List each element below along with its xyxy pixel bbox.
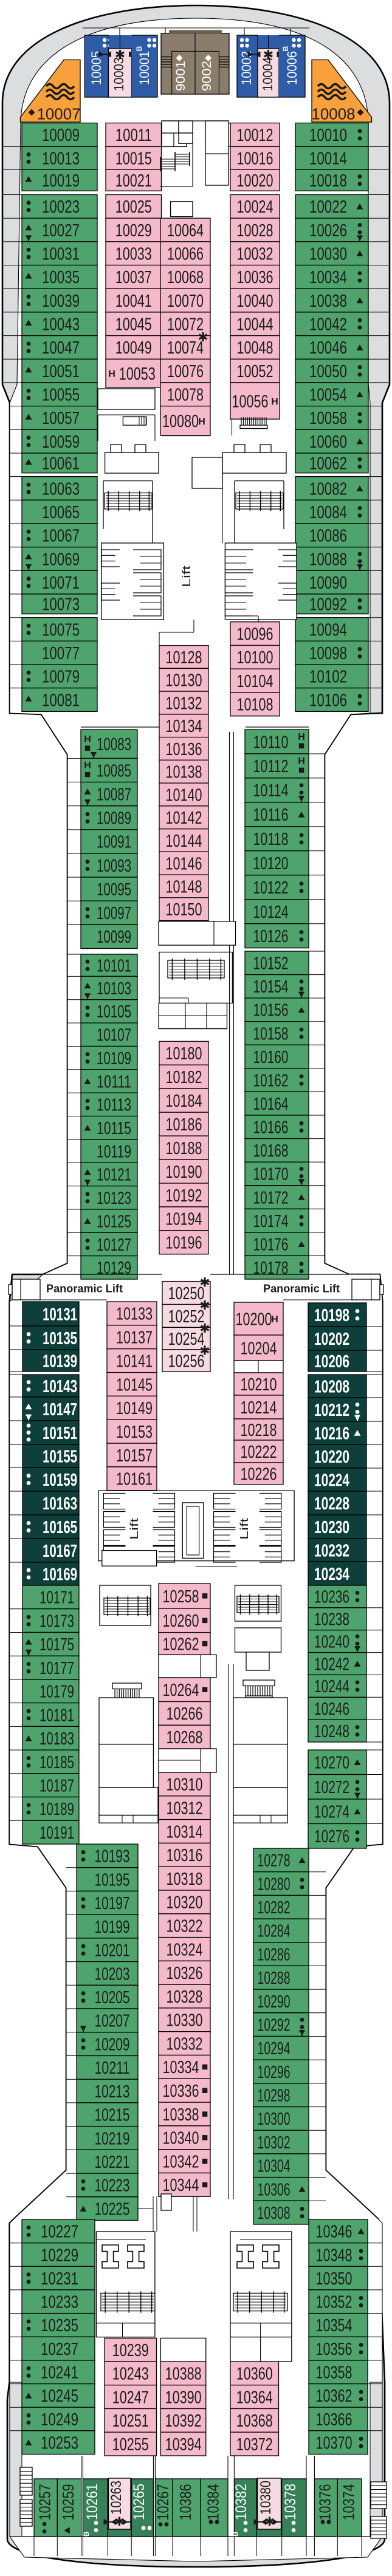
svg-text:10134: 10134 <box>166 717 202 736</box>
svg-text:10190: 10190 <box>166 1163 202 1182</box>
svg-text:10384: 10384 <box>204 2484 222 2521</box>
svg-text:10176: 10176 <box>253 1235 289 1254</box>
svg-text:H: H <box>84 734 91 745</box>
svg-text:10038: 10038 <box>309 292 347 311</box>
svg-text:10215: 10215 <box>95 2106 130 2125</box>
svg-text:10001: 10001 <box>137 51 152 85</box>
svg-text:10358: 10358 <box>316 2363 352 2383</box>
svg-text:9001: 9001 <box>174 61 188 91</box>
svg-text:10382: 10382 <box>233 2484 250 2520</box>
svg-text:10386: 10386 <box>176 2484 194 2521</box>
svg-text:10308: 10308 <box>258 2204 291 2223</box>
svg-text:9002: 9002 <box>200 61 214 91</box>
svg-text:10322: 10322 <box>167 1917 203 1936</box>
svg-text:10066: 10066 <box>167 245 204 264</box>
svg-text:10171: 10171 <box>40 1588 74 1608</box>
svg-text:10160: 10160 <box>253 1048 289 1067</box>
svg-text:10178: 10178 <box>253 1259 289 1278</box>
svg-text:10235: 10235 <box>41 2316 78 2335</box>
svg-text:10099: 10099 <box>97 928 131 947</box>
svg-text:10144: 10144 <box>166 832 202 851</box>
svg-text:10274: 10274 <box>314 1803 349 1822</box>
svg-text:10132: 10132 <box>166 694 202 713</box>
svg-text:10065: 10065 <box>42 503 80 522</box>
svg-text:10124: 10124 <box>253 903 289 922</box>
svg-text:10018: 10018 <box>309 171 347 191</box>
svg-text:10177: 10177 <box>40 1659 74 1678</box>
svg-text:10007: 10007 <box>37 105 81 123</box>
svg-text:10100: 10100 <box>237 648 273 668</box>
svg-text:10268: 10268 <box>167 1728 203 1748</box>
svg-text:10040: 10040 <box>237 292 273 311</box>
svg-text:10370: 10370 <box>316 2434 352 2453</box>
svg-text:10155: 10155 <box>43 1447 77 1466</box>
svg-text:10167: 10167 <box>43 1542 77 1561</box>
svg-text:B: B <box>281 46 290 51</box>
svg-text:10023: 10023 <box>42 197 80 217</box>
svg-text:10179: 10179 <box>40 1683 74 1702</box>
svg-text:10256: 10256 <box>168 1352 205 1372</box>
svg-text:10228: 10228 <box>314 1494 349 1514</box>
svg-text:10263: 10263 <box>108 2481 125 2515</box>
svg-text:10138: 10138 <box>166 763 202 782</box>
svg-text:10244: 10244 <box>314 1677 349 1696</box>
svg-text:10076: 10076 <box>167 362 204 381</box>
svg-text:10136: 10136 <box>166 740 202 759</box>
svg-text:10013: 10013 <box>42 149 80 169</box>
svg-text:10368: 10368 <box>236 2411 273 2431</box>
svg-text:10198: 10198 <box>314 1306 349 1325</box>
svg-text:10226: 10226 <box>241 1464 277 1484</box>
svg-text:10070: 10070 <box>167 292 204 311</box>
svg-text:10252: 10252 <box>168 1307 205 1327</box>
svg-text:10225: 10225 <box>95 2199 130 2219</box>
svg-text:10280: 10280 <box>258 1874 291 1894</box>
svg-text:10210: 10210 <box>241 1375 277 1395</box>
svg-text:10164: 10164 <box>253 1095 289 1114</box>
svg-text:10005: 10005 <box>89 51 104 85</box>
svg-text:10231: 10231 <box>41 2269 78 2289</box>
svg-text:10362: 10362 <box>316 2386 352 2406</box>
svg-text:10149: 10149 <box>116 1399 153 1418</box>
svg-text:10118: 10118 <box>253 830 289 849</box>
svg-text:10300: 10300 <box>258 2110 291 2129</box>
svg-text:10039: 10039 <box>42 292 80 311</box>
svg-text:10102: 10102 <box>309 668 347 687</box>
svg-text:10085: 10085 <box>97 761 131 781</box>
svg-text:10207: 10207 <box>95 2012 130 2031</box>
svg-text:10106: 10106 <box>309 691 347 710</box>
svg-text:10302: 10302 <box>258 2133 291 2153</box>
svg-text:10170: 10170 <box>253 1165 289 1184</box>
svg-text:10026: 10026 <box>309 221 347 241</box>
svg-text:10298: 10298 <box>258 2086 291 2106</box>
svg-text:Lift: Lift <box>128 1518 140 1540</box>
svg-text:10012: 10012 <box>237 126 273 145</box>
svg-text:10187: 10187 <box>40 1777 74 1796</box>
svg-text:10068: 10068 <box>167 268 204 287</box>
svg-text:10192: 10192 <box>166 1186 202 1206</box>
svg-text:10035: 10035 <box>42 268 80 287</box>
svg-text:10006: 10006 <box>284 51 300 85</box>
svg-text:10338: 10338 <box>163 2105 199 2125</box>
svg-text:10196: 10196 <box>166 1234 202 1253</box>
svg-text:10016: 10016 <box>237 149 273 169</box>
svg-text:10242: 10242 <box>314 1655 349 1674</box>
svg-text:10175: 10175 <box>40 1635 74 1655</box>
svg-text:10336: 10336 <box>163 2082 199 2101</box>
svg-text:10072: 10072 <box>167 315 204 335</box>
svg-text:10049: 10049 <box>115 338 152 358</box>
svg-text:10057: 10057 <box>42 409 80 428</box>
svg-text:Panoramic Lift: Panoramic Lift <box>46 1283 123 1295</box>
svg-text:10326: 10326 <box>167 1964 203 1983</box>
svg-text:10236: 10236 <box>314 1588 349 1607</box>
svg-text:10113: 10113 <box>97 1096 131 1115</box>
svg-text:10104: 10104 <box>237 672 273 691</box>
svg-text:10314: 10314 <box>167 1822 203 1842</box>
svg-text:10247: 10247 <box>112 2388 149 2407</box>
svg-text:10206: 10206 <box>314 1352 349 1372</box>
svg-text:10372: 10372 <box>236 2435 273 2455</box>
svg-text:10211: 10211 <box>95 2058 130 2078</box>
svg-text:10137: 10137 <box>116 1328 153 1348</box>
svg-text:10061: 10061 <box>42 454 80 474</box>
svg-text:10185: 10185 <box>40 1753 74 1772</box>
svg-text:10021: 10021 <box>115 171 152 191</box>
svg-text:10011: 10011 <box>115 126 152 145</box>
svg-text:10157: 10157 <box>116 1446 153 1466</box>
svg-text:10234: 10234 <box>314 1565 349 1584</box>
svg-text:10394: 10394 <box>165 2435 202 2455</box>
svg-text:10052: 10052 <box>237 362 273 381</box>
svg-text:10374: 10374 <box>339 2484 357 2521</box>
svg-text:10232: 10232 <box>314 1541 349 1560</box>
svg-text:10356: 10356 <box>316 2340 352 2359</box>
svg-text:10141: 10141 <box>116 1351 153 1371</box>
svg-text:10067: 10067 <box>42 527 80 546</box>
svg-text:10131: 10131 <box>43 1305 77 1324</box>
svg-text:10022: 10022 <box>309 197 347 217</box>
svg-text:10266: 10266 <box>167 1704 203 1724</box>
svg-text:10091: 10091 <box>97 833 131 852</box>
svg-text:10240: 10240 <box>314 1632 349 1652</box>
svg-text:10229: 10229 <box>41 2246 78 2265</box>
svg-text:10162: 10162 <box>253 1071 289 1090</box>
svg-text:10031: 10031 <box>42 245 80 264</box>
svg-text:10276: 10276 <box>314 1827 349 1847</box>
svg-text:10062: 10062 <box>309 454 347 474</box>
svg-text:10238: 10238 <box>314 1610 349 1630</box>
svg-text:10380: 10380 <box>258 2481 274 2515</box>
svg-text:10286: 10286 <box>258 1945 291 1964</box>
svg-text:10025: 10025 <box>115 197 152 217</box>
svg-text:10203: 10203 <box>95 1964 130 1984</box>
svg-text:10239: 10239 <box>112 2341 149 2360</box>
svg-text:10108: 10108 <box>237 695 273 715</box>
svg-text:10332: 10332 <box>167 2034 203 2054</box>
svg-text:10053: 10053 <box>119 364 156 384</box>
svg-text:10156: 10156 <box>253 1001 289 1020</box>
svg-text:10334: 10334 <box>163 2058 199 2077</box>
svg-text:10173: 10173 <box>40 1611 74 1631</box>
svg-text:10354: 10354 <box>316 2316 352 2335</box>
svg-text:10036: 10036 <box>237 268 273 287</box>
svg-text:10205: 10205 <box>95 1988 130 2007</box>
svg-text:10204: 10204 <box>241 1339 277 1358</box>
svg-text:10260: 10260 <box>163 1611 199 1631</box>
svg-text:10243: 10243 <box>112 2365 149 2384</box>
svg-text:10116: 10116 <box>253 805 289 825</box>
svg-text:10284: 10284 <box>258 1922 291 1941</box>
svg-text:10029: 10029 <box>115 221 152 241</box>
svg-text:10306: 10306 <box>258 2180 291 2199</box>
svg-text:10200: 10200 <box>236 1310 272 1329</box>
svg-text:10392: 10392 <box>165 2411 202 2431</box>
svg-text:10191: 10191 <box>40 1823 74 1843</box>
svg-text:10020: 10020 <box>237 171 273 191</box>
svg-text:10090: 10090 <box>309 573 347 593</box>
svg-text:10064: 10064 <box>167 221 204 241</box>
svg-text:10259: 10259 <box>59 2484 77 2521</box>
svg-text:10054: 10054 <box>309 386 347 405</box>
svg-text:10003: 10003 <box>111 57 126 91</box>
svg-text:10201: 10201 <box>95 1941 130 1961</box>
svg-text:10135: 10135 <box>43 1329 77 1348</box>
svg-text:10230: 10230 <box>314 1518 349 1537</box>
svg-text:10318: 10318 <box>167 1870 203 1889</box>
svg-text:10125: 10125 <box>97 1212 131 1231</box>
svg-text:10030: 10030 <box>309 245 347 264</box>
svg-text:10032: 10032 <box>237 245 273 264</box>
svg-text:10083: 10083 <box>97 735 131 754</box>
svg-text:10272: 10272 <box>314 1778 349 1797</box>
svg-text:10197: 10197 <box>95 1894 130 1913</box>
svg-text:B: B <box>231 2531 239 2537</box>
svg-text:10093: 10093 <box>97 856 131 876</box>
svg-text:10213: 10213 <box>95 2082 130 2102</box>
svg-text:10346: 10346 <box>316 2222 352 2242</box>
svg-text:10186: 10186 <box>166 1115 202 1135</box>
svg-text:10158: 10158 <box>253 1024 289 1044</box>
svg-text:10094: 10094 <box>309 620 347 640</box>
svg-text:10128: 10128 <box>166 648 202 668</box>
svg-text:10027: 10027 <box>42 221 80 241</box>
svg-text:10097: 10097 <box>97 904 131 923</box>
svg-text:10267: 10267 <box>154 2484 172 2521</box>
svg-text:10080: 10080 <box>162 412 199 431</box>
svg-text:10069: 10069 <box>42 550 80 569</box>
svg-text:10209: 10209 <box>95 2035 130 2054</box>
svg-text:10202: 10202 <box>314 1330 349 1349</box>
svg-text:10119: 10119 <box>97 1142 131 1161</box>
svg-text:10146: 10146 <box>166 855 202 874</box>
svg-text:10264: 10264 <box>163 1681 199 1700</box>
svg-text:10360: 10360 <box>236 2365 273 2384</box>
svg-text:10233: 10233 <box>41 2293 78 2312</box>
svg-text:10047: 10047 <box>42 338 80 358</box>
svg-text:10390: 10390 <box>165 2388 202 2407</box>
svg-text:10154: 10154 <box>253 977 289 997</box>
svg-text:10129: 10129 <box>97 1259 131 1278</box>
svg-text:10251: 10251 <box>112 2411 149 2431</box>
svg-text:10253: 10253 <box>41 2434 78 2453</box>
svg-text:10015: 10015 <box>115 149 152 169</box>
svg-text:10071: 10071 <box>42 573 80 593</box>
svg-text:10042: 10042 <box>309 315 347 335</box>
svg-text:10320: 10320 <box>167 1893 203 1913</box>
svg-text:10089: 10089 <box>97 809 131 828</box>
svg-text:10241: 10241 <box>41 2363 78 2383</box>
svg-text:10366: 10366 <box>316 2410 352 2430</box>
svg-text:10290: 10290 <box>258 1992 291 2012</box>
svg-text:10034: 10034 <box>309 268 347 287</box>
svg-text:H: H <box>84 760 91 771</box>
svg-text:10219: 10219 <box>95 2129 130 2148</box>
svg-text:10122: 10122 <box>253 878 289 898</box>
svg-text:10123: 10123 <box>97 1189 131 1208</box>
svg-text:10250: 10250 <box>168 1284 205 1303</box>
svg-text:10172: 10172 <box>253 1188 289 1208</box>
svg-text:10051: 10051 <box>42 362 80 381</box>
svg-text:10294: 10294 <box>258 2039 291 2058</box>
svg-text:10037: 10037 <box>115 268 152 287</box>
svg-text:H: H <box>198 417 205 427</box>
svg-text:10101: 10101 <box>97 957 131 976</box>
svg-text:10310: 10310 <box>167 1775 203 1795</box>
svg-text:10115: 10115 <box>97 1119 131 1138</box>
svg-text:10316: 10316 <box>167 1846 203 1865</box>
svg-text:10002: 10002 <box>239 51 254 85</box>
svg-text:10028: 10028 <box>237 221 273 241</box>
svg-text:H: H <box>298 756 305 767</box>
svg-text:10086: 10086 <box>309 527 347 546</box>
svg-text:10044: 10044 <box>237 315 273 335</box>
svg-text:10378: 10378 <box>282 2484 299 2520</box>
svg-text:10103: 10103 <box>97 979 131 999</box>
svg-text:10181: 10181 <box>40 1706 74 1725</box>
svg-text:10296: 10296 <box>258 2063 291 2082</box>
svg-text:10121: 10121 <box>97 1166 131 1185</box>
svg-text:10059: 10059 <box>42 432 80 452</box>
svg-text:10145: 10145 <box>116 1375 153 1395</box>
svg-text:10292: 10292 <box>258 2016 291 2035</box>
svg-text:10220: 10220 <box>314 1447 349 1467</box>
svg-text:H: H <box>298 732 305 742</box>
svg-text:10114: 10114 <box>253 781 289 801</box>
svg-text:10150: 10150 <box>166 900 202 920</box>
svg-text:10168: 10168 <box>253 1141 289 1161</box>
svg-text:10304: 10304 <box>258 2157 291 2176</box>
svg-text:10248: 10248 <box>314 1722 349 1741</box>
svg-text:H: H <box>271 397 278 407</box>
svg-text:10058: 10058 <box>309 409 347 428</box>
svg-text:10352: 10352 <box>316 2293 352 2312</box>
svg-text:Lift: Lift <box>181 565 193 587</box>
svg-text:10098: 10098 <box>309 644 347 663</box>
svg-text:10214: 10214 <box>241 1398 277 1418</box>
svg-text:10388: 10388 <box>165 2365 202 2384</box>
svg-text:10376: 10376 <box>316 2484 334 2521</box>
svg-text:10078: 10078 <box>167 386 204 405</box>
svg-text:10096: 10096 <box>237 625 273 644</box>
svg-text:10088: 10088 <box>309 550 347 569</box>
svg-text:10265: 10265 <box>131 2484 148 2520</box>
svg-text:10045: 10045 <box>115 315 152 335</box>
svg-text:10147: 10147 <box>43 1400 77 1420</box>
svg-text:10008: 10008 <box>312 105 356 123</box>
svg-text:10050: 10050 <box>309 362 347 381</box>
svg-text:Lift: Lift <box>238 1518 250 1540</box>
svg-text:10041: 10041 <box>115 292 152 311</box>
svg-text:10143: 10143 <box>43 1377 77 1396</box>
svg-text:10270: 10270 <box>314 1754 349 1773</box>
svg-text:10182: 10182 <box>166 1068 202 1087</box>
svg-text:10344: 10344 <box>163 2176 199 2195</box>
svg-text:10073: 10073 <box>42 595 80 615</box>
svg-text:10364: 10364 <box>236 2388 273 2407</box>
svg-text:10120: 10120 <box>253 854 289 873</box>
svg-text:10095: 10095 <box>97 880 131 900</box>
svg-text:10193: 10193 <box>95 1847 130 1867</box>
svg-text:B: B <box>135 46 143 51</box>
svg-text:10010: 10010 <box>309 126 347 145</box>
svg-text:10199: 10199 <box>95 1918 130 1937</box>
svg-text:10258: 10258 <box>163 1587 199 1607</box>
svg-text:10105: 10105 <box>97 1002 131 1022</box>
svg-text:10009: 10009 <box>42 126 80 145</box>
svg-text:10033: 10033 <box>115 245 152 264</box>
svg-text:10227: 10227 <box>41 2222 78 2242</box>
svg-text:10084: 10084 <box>309 503 347 522</box>
svg-text:10004: 10004 <box>260 57 275 91</box>
svg-text:10166: 10166 <box>253 1118 289 1138</box>
svg-text:10063: 10063 <box>42 479 80 499</box>
svg-text:10249: 10249 <box>41 2410 78 2430</box>
svg-text:10221: 10221 <box>95 2153 130 2172</box>
svg-text:10152: 10152 <box>253 954 289 974</box>
svg-text:10075: 10075 <box>42 620 80 640</box>
svg-text:10111: 10111 <box>97 1072 131 1092</box>
svg-text:10151: 10151 <box>43 1424 77 1443</box>
svg-text:B: B <box>82 2531 91 2537</box>
svg-text:10212: 10212 <box>314 1401 349 1420</box>
svg-text:10288: 10288 <box>258 1969 291 1988</box>
svg-text:10169: 10169 <box>43 1565 77 1584</box>
svg-text:10159: 10159 <box>43 1471 77 1490</box>
svg-text:10348: 10348 <box>316 2246 352 2265</box>
svg-text:10188: 10188 <box>166 1139 202 1158</box>
svg-text:10109: 10109 <box>97 1049 131 1068</box>
svg-text:10222: 10222 <box>241 1443 277 1462</box>
svg-text:10218: 10218 <box>241 1421 277 1440</box>
svg-text:10110: 10110 <box>253 733 289 752</box>
svg-text:10126: 10126 <box>253 927 289 946</box>
svg-text:10223: 10223 <box>95 2176 130 2196</box>
svg-text:10224: 10224 <box>314 1471 349 1490</box>
svg-text:10208: 10208 <box>314 1377 349 1396</box>
svg-text:H: H <box>108 369 115 380</box>
svg-text:10079: 10079 <box>42 668 80 687</box>
svg-text:10261: 10261 <box>84 2484 101 2520</box>
svg-text:10092: 10092 <box>309 595 347 615</box>
svg-text:10056: 10056 <box>232 392 269 411</box>
svg-text:10046: 10046 <box>309 338 347 358</box>
svg-text:10043: 10043 <box>42 315 80 335</box>
svg-text:10112: 10112 <box>253 757 289 776</box>
svg-text:10048: 10048 <box>237 338 273 358</box>
svg-text:10153: 10153 <box>116 1423 153 1442</box>
